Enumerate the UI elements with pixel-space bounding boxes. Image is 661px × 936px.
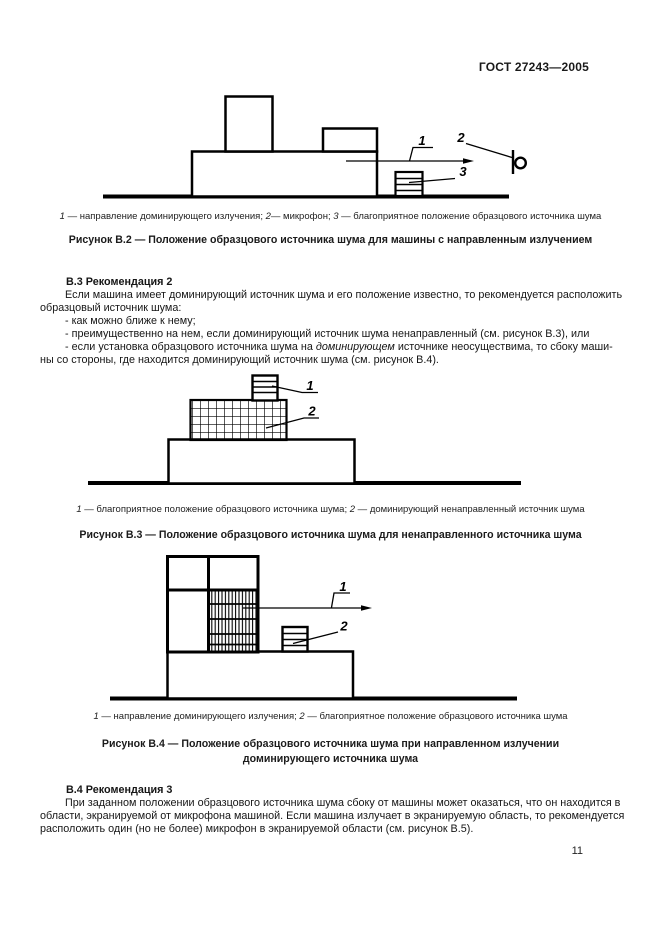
reference-source-box [253,376,278,401]
list-item-text: - если установка образцового источника ш… [65,341,316,353]
dominant-source-grid [191,400,287,440]
machine-base [169,440,355,484]
paragraph-line: образцовый источник шума: [40,302,600,315]
list-item: - если установка образцового источника ш… [40,341,600,354]
document-code: ГОСТ 27243—2005 [479,60,589,74]
paragraph-line: области, экранируемой от микрофона машин… [40,810,600,823]
list-item-italic-text: доминирующем [316,341,395,353]
machine-base [168,652,354,699]
section-b3-heading: В.3 Рекомендация 2 [40,276,600,289]
legend-text: — благоприятное положение образцового ис… [305,711,568,722]
reference-source-box [283,627,308,652]
paragraph-line: Если машина имеет доминирующий источник … [40,289,600,302]
radiation-arrow-head [463,158,474,164]
leader-line-1 [332,593,351,608]
legend-text: — микрофон; [271,211,333,222]
radiation-arrow-head [361,605,372,611]
legend-text: — направление доминирующего излучения; [65,211,266,222]
figure-b3-title: Рисунок В.3 — Положение образцового исто… [0,529,661,541]
figure-label-1: 1 [306,378,313,393]
figure-label-1: 1 [418,133,425,148]
figure-label-2: 2 [456,130,465,145]
figure-b3-legend: 1 — благоприятное положение образцового … [0,504,661,515]
figure-label-1: 1 [339,579,346,594]
figure-label-2: 2 [339,619,348,634]
figure-label-2: 2 [307,404,316,419]
section-b4-heading: В.4 Рекомендация 3 [40,784,600,797]
list-item: - как можно ближе к нему; [40,315,600,328]
dominant-source-hatch [210,592,257,651]
section-b4: В.4 Рекомендация 3 При заданном положени… [40,784,600,836]
figure-b3-diagram: 1 2 [80,368,530,490]
reference-source-box [396,172,423,196]
leader-line-2 [466,144,512,158]
legend-text: — благоприятное положение образцового ис… [82,504,350,515]
list-item: - преимущественно на нем, если доминирую… [40,328,600,341]
figure-b2-diagram: 1 2 3 [85,85,545,203]
machine-small-box [323,129,377,152]
figure-b4-diagram: 1 2 [100,550,525,705]
page-number: 11 [572,845,583,857]
figure-b4-legend: 1 — направление доминирующего излучения;… [0,711,661,722]
leader-line-1 [410,148,434,162]
section-b3: В.3 Рекомендация 2 Если машина имеет дом… [40,276,600,367]
figure-b4-title-line2: доминирующего источника шума [0,752,661,767]
figure-b4-title: Рисунок В.4 — Положение образцового исто… [0,737,661,767]
paragraph-line: ны со стороны, где находится доминирующи… [40,354,600,367]
machine-base [192,152,377,197]
legend-text: — благоприятное положение образцового ис… [339,211,602,222]
microphone-icon [513,150,526,174]
paragraph-line: расположить один (но не более) микрофон … [40,823,600,836]
figure-b2-title: Рисунок В.2 — Положение образцового исто… [0,234,661,246]
figure-b4-title-line1: Рисунок В.4 — Положение образцового исто… [0,737,661,752]
figure-b2-legend: 1 — направление доминирующего излучения;… [0,211,661,222]
figure-label-3: 3 [459,164,467,179]
list-item-text: источнике неосуществима, то сбоку маши- [395,341,613,353]
paragraph-line: При заданном положении образцового источ… [40,797,600,810]
legend-text: — направление доминирующего излучения; [99,711,300,722]
legend-text: — доминирующий ненаправленный источник ш… [355,504,585,515]
machine-tall-box [226,97,273,152]
